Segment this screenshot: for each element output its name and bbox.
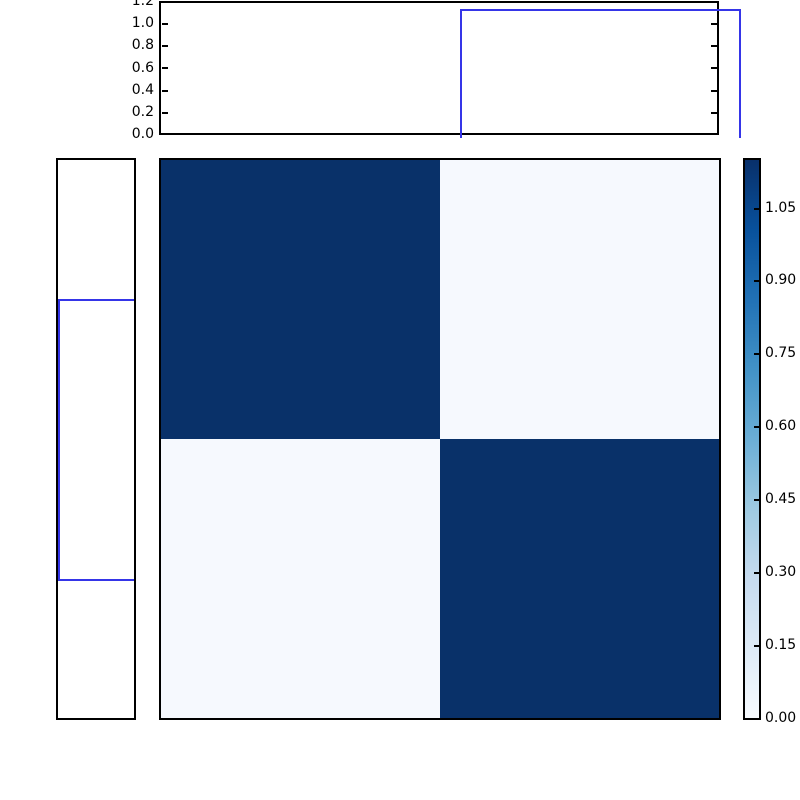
heatmap-cell-bottom-right — [440, 439, 719, 718]
axis-tick — [711, 90, 717, 92]
axis-tick — [162, 23, 168, 25]
axis-tick — [711, 45, 717, 47]
colorbar-tick — [754, 645, 759, 647]
colorbar-tick-label: 0.60 — [765, 418, 800, 435]
colorbar-tick-label: 0.30 — [765, 564, 800, 581]
colorbar-tick — [754, 426, 759, 428]
y-axis-tick-label: 0.2 — [100, 104, 154, 121]
colorbar-tick-label: 0.00 — [765, 710, 800, 727]
axis-tick — [711, 112, 717, 114]
axis-tick — [162, 112, 168, 114]
step-pulse-left — [58, 299, 134, 581]
axis-tick — [162, 45, 168, 47]
colorbar-tick — [754, 353, 759, 355]
y-axis-tick-label: 0.4 — [100, 82, 154, 99]
heatmap-panel — [159, 158, 721, 720]
y-axis-tick-label: 1.0 — [100, 15, 154, 32]
axis-tick — [162, 90, 168, 92]
y-axis-tick-label: 0.0 — [100, 126, 154, 143]
axis-tick — [711, 23, 717, 25]
colorbar-tick-label: 0.90 — [765, 272, 800, 289]
colorbar-tick — [754, 572, 759, 574]
step-pulse-top — [460, 9, 741, 138]
colorbar-tick — [754, 280, 759, 282]
y-axis-tick-label: 0.6 — [100, 60, 154, 77]
colorbar-tick-label: 1.05 — [765, 200, 800, 217]
axis-tick — [162, 67, 168, 69]
colorbar-gradient — [743, 158, 761, 720]
heatmap-cell-top-right — [440, 160, 719, 439]
colorbar-tick — [754, 499, 759, 501]
y-axis-tick-label: 0.8 — [100, 37, 154, 54]
heatmap-cell-bottom-left — [161, 439, 440, 718]
colorbar-tick-label: 0.75 — [765, 345, 800, 362]
colorbar-tick-label: 0.15 — [765, 637, 800, 654]
colorbar-tick-label: 0.45 — [765, 491, 800, 508]
y-axis-tick-label: 1.2 — [100, 0, 154, 10]
heatmap-cell-top-left — [161, 160, 440, 439]
top-marginal-panel — [159, 1, 719, 135]
axis-tick — [711, 67, 717, 69]
colorbar-tick — [754, 208, 759, 210]
